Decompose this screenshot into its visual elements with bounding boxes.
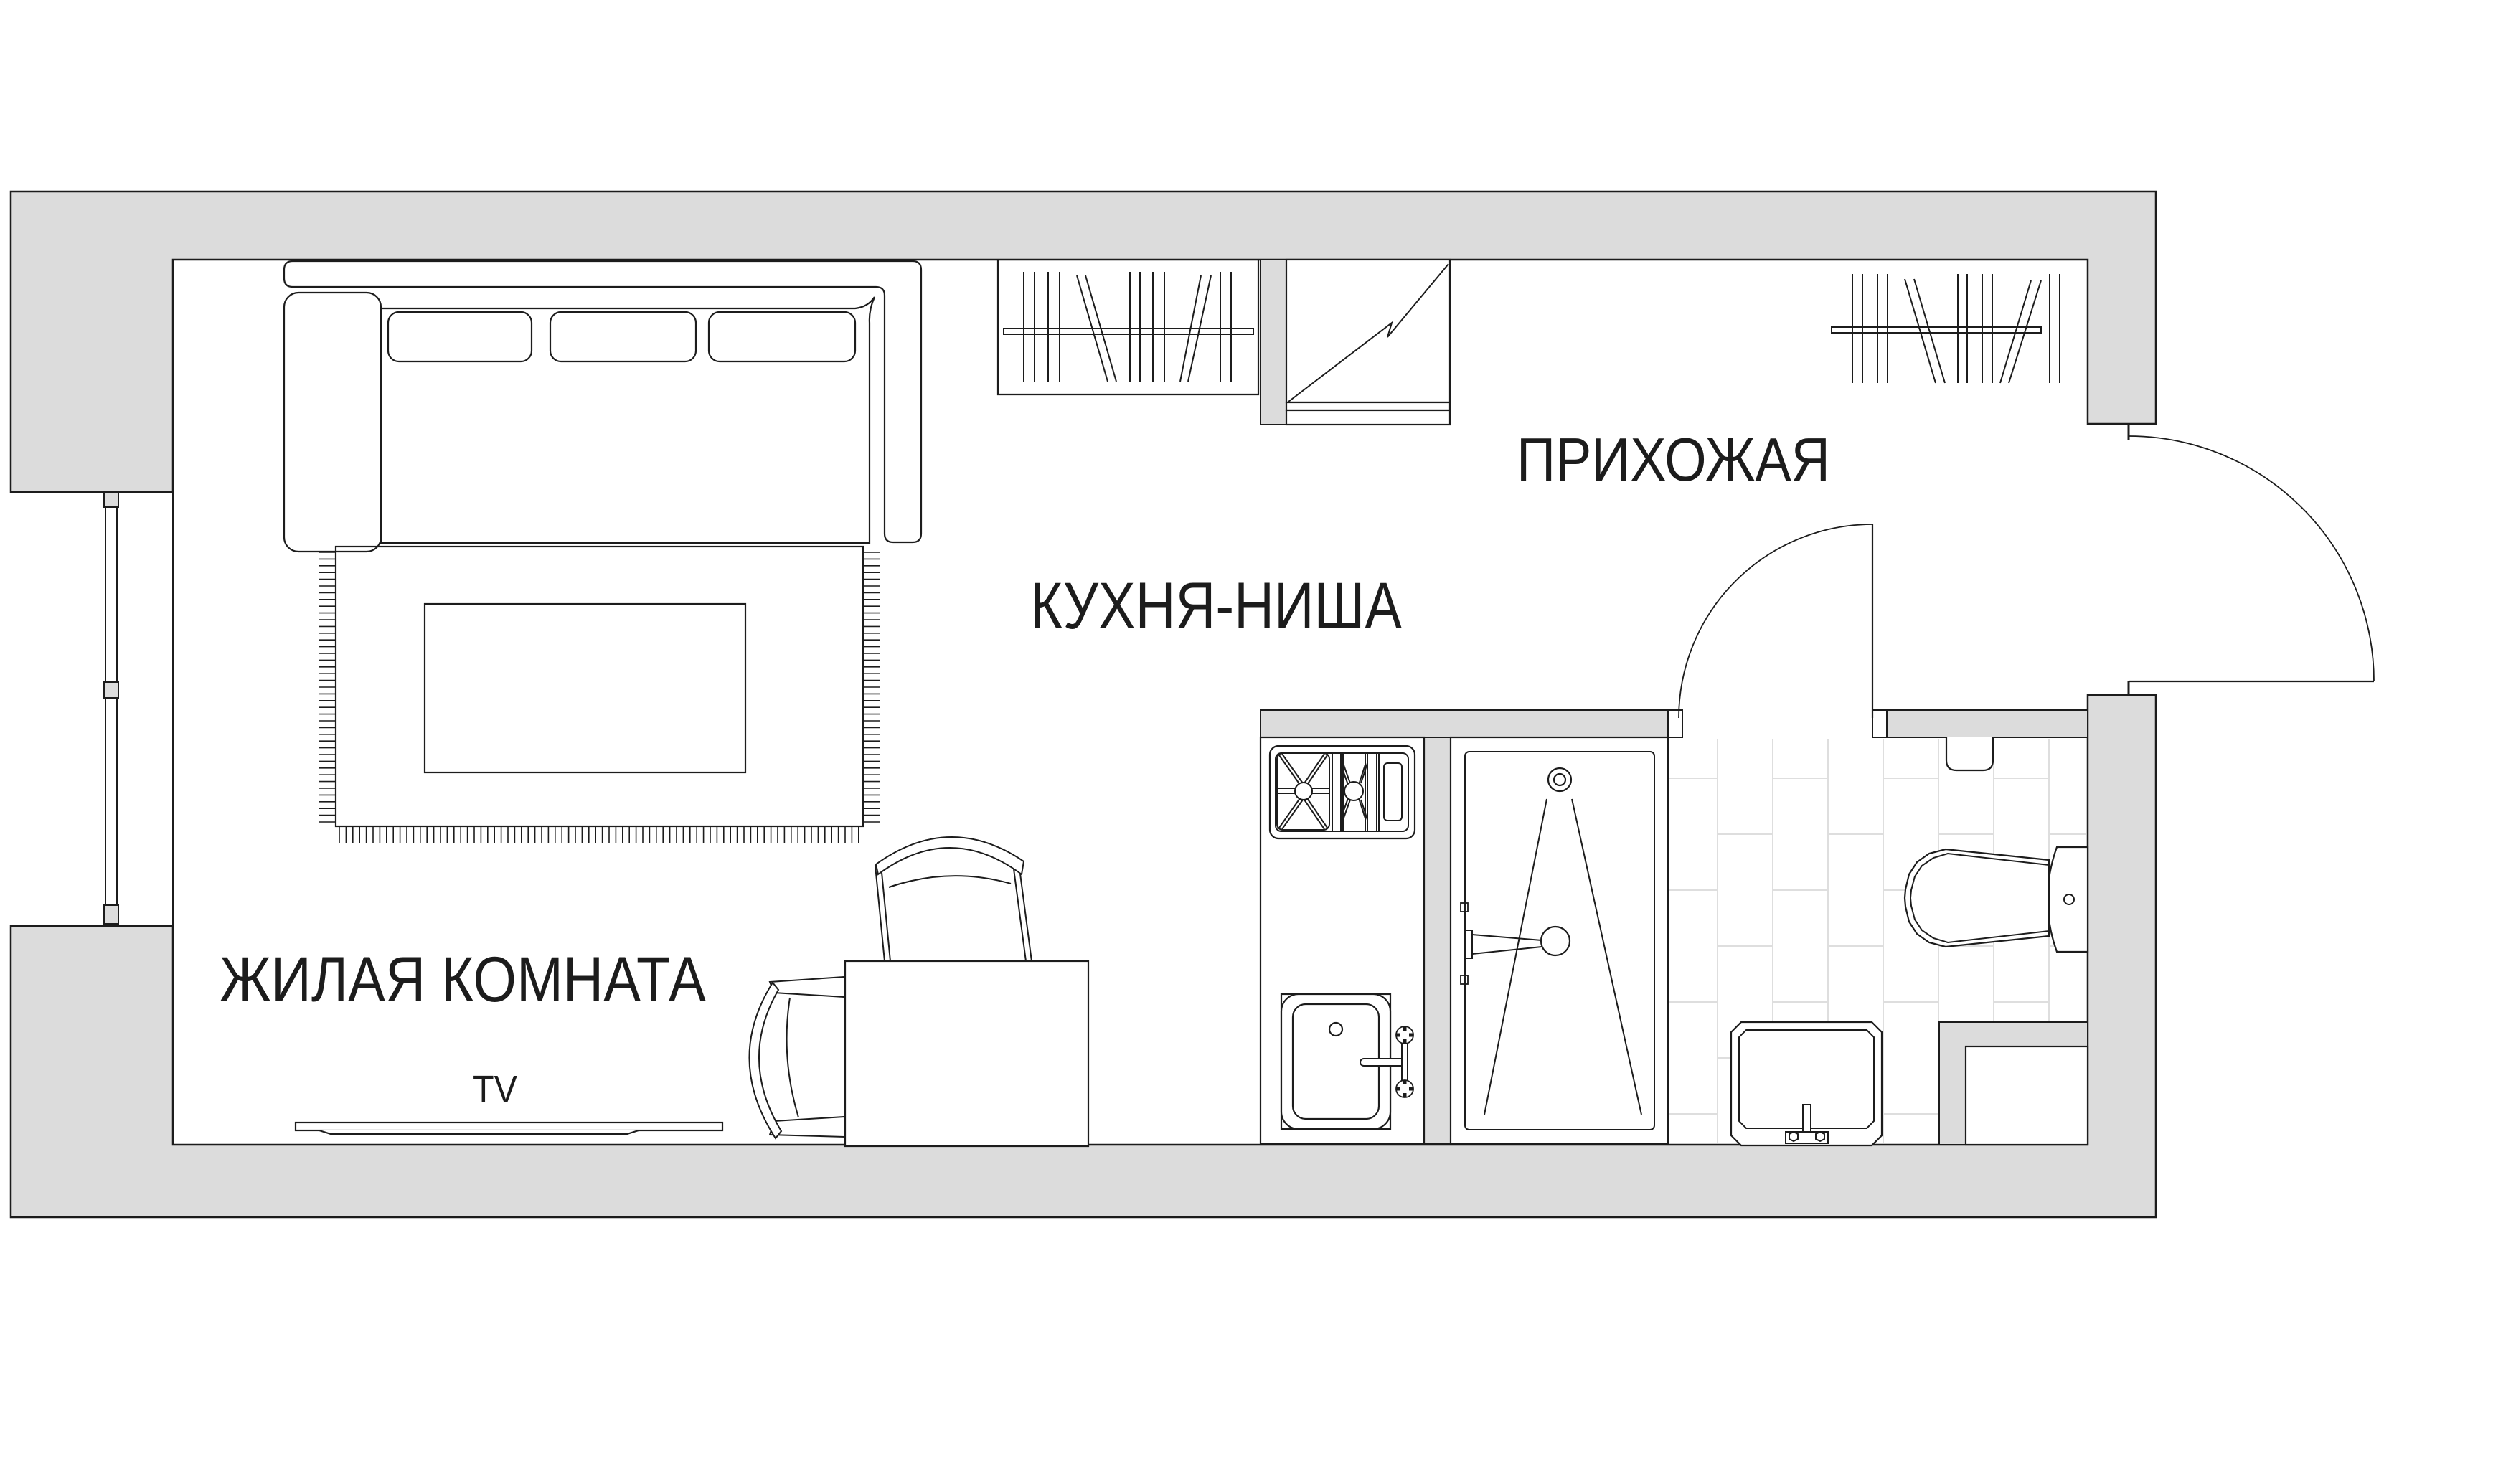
svg-text:КУХНЯ-НИША: КУХНЯ-НИША: [1030, 570, 1403, 643]
svg-text:TV: TV: [473, 1068, 517, 1111]
svg-text:ПРИХОЖАЯ: ПРИХОЖАЯ: [1517, 426, 1830, 494]
svg-text:ЖИЛАЯ КОМНАТА: ЖИЛАЯ КОМНАТА: [220, 943, 707, 1015]
